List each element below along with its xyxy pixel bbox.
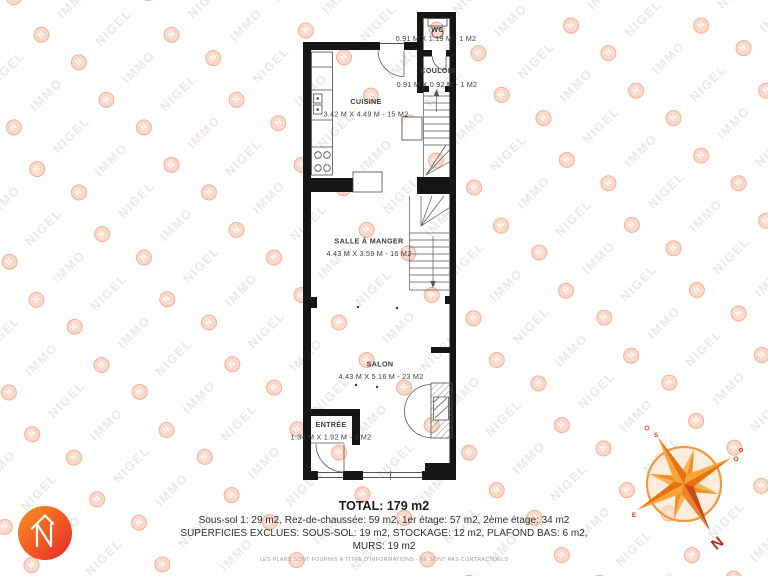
room-label-wc: WC [431, 25, 444, 34]
floorplan-page: NIGELNIMMONNIGELNIMMONNIGELNIMMONNIGELNI… [0, 0, 768, 576]
room-dims-couloir: 0.91 M X 0.92 M - 1 M2 [397, 80, 478, 89]
room-label-entree: ENTRÉE [316, 420, 347, 429]
excluded-areas-text: SUPERFICIES EXCLUES: SOUS-SOL: 19 m2, ST… [0, 528, 768, 539]
room-label-salle-a-manger: SALLE À MANGER [335, 237, 404, 246]
stairs-up-arrow [434, 89, 439, 112]
entry-window [318, 473, 343, 478]
room-dims-entree: 1.34 M X 1.92 M - 3 M2 [291, 433, 372, 442]
total-area-text: TOTAL: 179 m2 [0, 499, 768, 513]
floor-areas-text: Sous-sol 1: 29 m2, Rez-de-chaussée: 59 m… [0, 515, 768, 526]
room-label-couloir: COULOIR [420, 66, 456, 75]
stairs-lower [410, 196, 450, 290]
compass-south-label: S [654, 432, 659, 439]
stairs-down-arrow [430, 236, 435, 288]
room-dims-salon: 4.43 M X 5.16 M - 23 M2 [339, 372, 424, 381]
salon-window [363, 471, 422, 480]
kitchen-door-arc [378, 51, 404, 77]
kitchen-island [353, 172, 382, 192]
room-dims-wc: 0.91 M X 1.19 M - 1 M2 [396, 34, 477, 43]
fireplace [405, 383, 453, 438]
room-dims-salle-a-manger: 4.43 M X 3.59 M - 16 M2 [327, 249, 412, 258]
room-dims-cuisine: 3.42 M X 4.49 M - 15 M2 [324, 110, 409, 119]
entry-door-arc [311, 443, 344, 472]
sink-icon [314, 94, 323, 114]
kitchen-cabinet [402, 117, 422, 140]
kitchen-fixtures [312, 52, 423, 192]
room-label-cuisine: CUISINE [350, 97, 381, 106]
stairs-upper [424, 89, 450, 177]
walls-area-text: MURS: 19 m2 [0, 541, 768, 552]
disclaimer-text: LES PLANS SONT FOURNIS À TITRE D'INFORMA… [0, 557, 768, 563]
room-label-salon: SALON [367, 360, 394, 369]
compass-west-label: O [733, 456, 738, 463]
stove-icon [315, 152, 331, 172]
